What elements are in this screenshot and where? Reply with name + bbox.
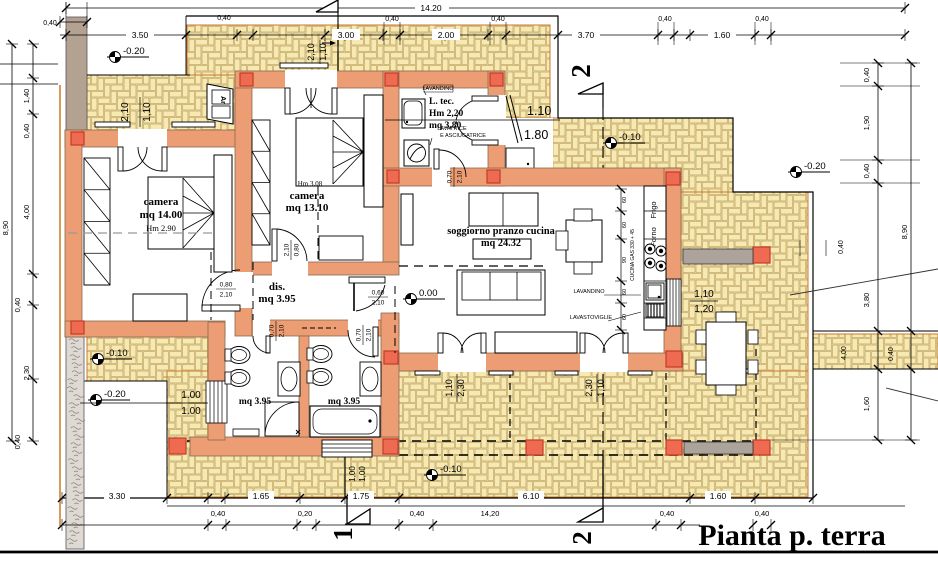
svg-text:60: 60 [622,222,628,228]
svg-text:mq 13.10: mq 13.10 [286,202,329,214]
svg-text:1,10: 1,10 [596,379,606,397]
svg-text:0,40: 0,40 [43,20,57,27]
svg-text:3.30: 3.30 [109,491,126,501]
svg-text:2: 2 [567,531,597,545]
svg-text:LAVATRICE: LAVATRICE [437,126,467,132]
svg-text:-0.20: -0.20 [104,389,126,400]
svg-text:LAVANDINO: LAVANDINO [423,86,455,92]
svg-text:2,10: 2,10 [279,324,286,337]
svg-text:0,40: 0,40 [13,435,22,450]
svg-text:Ar: Ar [219,96,226,104]
svg-text:1: 1 [328,527,358,541]
svg-text:1,10: 1,10 [142,102,153,122]
svg-text:2,10: 2,10 [120,102,131,122]
svg-text:60: 60 [622,197,628,203]
svg-text:LAVANDINO: LAVANDINO [574,289,606,295]
svg-text:0,40: 0,40 [211,509,226,518]
svg-text:1,10: 1,10 [318,43,328,61]
svg-text:mq 14.00: mq 14.00 [140,209,183,221]
svg-text:0,40: 0,40 [755,509,770,518]
svg-text:LAVASTOVIGLIE: LAVASTOVIGLIE [570,315,613,321]
svg-text:6.10: 6.10 [523,491,540,501]
svg-text:soggiorno pranzo cucina: soggiorno pranzo cucina [447,226,555,237]
svg-text:1,00: 1,00 [358,466,367,482]
svg-text:mq 3.95: mq 3.95 [258,293,296,305]
svg-text:0,40: 0,40 [491,16,505,23]
svg-text:1.00: 1.00 [181,406,201,417]
svg-text:-0.20: -0.20 [123,46,145,57]
svg-text:8,90: 8,90 [1,221,10,236]
svg-text:Pianta p. terra: Pianta p. terra [698,519,885,552]
svg-text:0,40: 0,40 [660,509,675,518]
svg-text:E ASCIUGATRICE: E ASCIUGATRICE [440,133,486,139]
svg-text:mq 3.95: mq 3.95 [328,397,360,407]
svg-text:0,70: 0,70 [447,170,454,183]
svg-text:3.00: 3.00 [338,30,355,40]
svg-text:-0.10: -0.10 [106,348,128,359]
svg-text:1.80: 1.80 [524,128,548,142]
svg-text:3,80: 3,80 [862,293,871,308]
svg-text:4,00: 4,00 [841,346,848,360]
svg-text:0,40: 0,40 [862,68,871,83]
svg-text:60: 60 [622,289,628,295]
svg-text:0,40: 0,40 [410,509,425,518]
svg-text:Hm 2,20: Hm 2,20 [429,109,464,119]
svg-text:0,60: 0,60 [372,290,385,297]
svg-text:1,10: 1,10 [444,379,454,397]
svg-text:2.00: 2.00 [438,30,455,40]
svg-text:Hm 3.08: Hm 3.08 [298,180,323,188]
svg-text:14.20: 14.20 [420,3,442,13]
svg-text:-0.10: -0.10 [619,132,641,143]
svg-text:0,40: 0,40 [838,240,845,254]
svg-text:1.65: 1.65 [253,491,270,501]
svg-text:4,00: 4,00 [22,205,31,220]
svg-text:dis.: dis. [269,281,285,293]
svg-text:1.60: 1.60 [710,491,727,501]
svg-text:1,60: 1,60 [862,397,871,412]
svg-text:1.10: 1.10 [527,104,551,118]
svg-text:0,80: 0,80 [220,282,233,289]
svg-text:1,40: 1,40 [22,89,31,104]
svg-text:0,40: 0,40 [22,124,31,139]
svg-text:0,70: 0,70 [269,324,276,337]
svg-text:mq 24.32: mq 24.32 [481,238,521,249]
svg-text:0,70: 0,70 [356,328,363,341]
svg-text:0.00: 0.00 [419,288,438,299]
svg-text:CUCINA GAS 330 + 45: CUCINA GAS 330 + 45 [630,229,636,281]
svg-text:2,10: 2,10 [457,170,464,183]
svg-text:0,20: 0,20 [298,509,313,518]
svg-text:camera: camera [290,190,325,202]
svg-text:2: 2 [566,64,596,78]
svg-text:0,40: 0,40 [217,15,231,22]
svg-text:8,90: 8,90 [900,225,909,240]
svg-text:Frigo: Frigo [649,201,658,218]
svg-text:0,40: 0,40 [658,16,672,23]
svg-text:1,20: 1,20 [694,304,714,315]
svg-text:2,30: 2,30 [584,379,594,397]
svg-text:3.50: 3.50 [132,30,149,40]
svg-text:3.70: 3.70 [578,30,595,40]
svg-text:2,30: 2,30 [22,366,31,381]
svg-text:Hm 2.90: Hm 2.90 [146,223,176,233]
svg-text:90: 90 [622,257,628,263]
svg-text:0,40: 0,40 [13,298,22,313]
svg-text:14,20: 14,20 [481,509,500,518]
svg-text:1,90: 1,90 [862,116,871,131]
svg-text:0,80: 0,80 [294,243,301,256]
svg-text:1,10: 1,10 [694,289,714,300]
svg-text:0,40: 0,40 [755,16,769,23]
svg-text:2,10: 2,10 [372,300,385,307]
svg-text:0,40: 0,40 [385,16,399,23]
svg-text:0,40: 0,40 [888,347,895,361]
svg-text:1,00: 1,00 [348,466,357,482]
svg-text:-0.20: -0.20 [804,161,826,172]
svg-text:2,10: 2,10 [366,328,373,341]
svg-text:1.75: 1.75 [353,491,370,501]
svg-text:2,30: 2,30 [456,379,466,397]
svg-text:2,10: 2,10 [306,43,316,61]
svg-text:2,10: 2,10 [220,292,233,299]
svg-text:0,40: 0,40 [862,164,871,179]
svg-text:mq 3.95: mq 3.95 [239,397,271,407]
svg-text:-0.10: -0.10 [440,464,462,475]
svg-text:camera: camera [144,196,179,208]
svg-text:L. tec.: L. tec. [429,97,454,107]
svg-text:2,10: 2,10 [284,243,291,256]
svg-text:1.00: 1.00 [181,390,201,401]
svg-text:1.60: 1.60 [714,30,731,40]
